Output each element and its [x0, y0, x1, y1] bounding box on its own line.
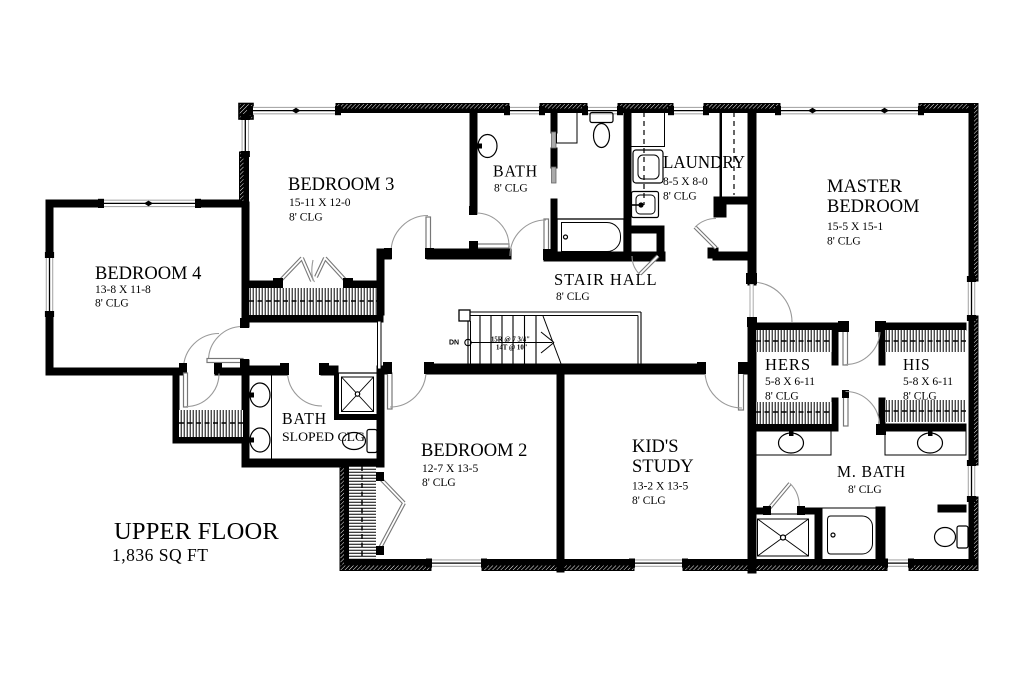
svg-text:8' CLG: 8' CLG: [95, 298, 129, 310]
svg-text:STUDY: STUDY: [632, 457, 694, 477]
svg-text:15-11 X 12-0: 15-11 X 12-0: [289, 197, 351, 209]
svg-text:5-8 X 6-11: 5-8 X 6-11: [765, 376, 815, 388]
svg-text:BATH: BATH: [493, 162, 538, 181]
svg-text:15R @ 7 3/4": 15R @ 7 3/4": [491, 337, 530, 344]
svg-text:8' CLG: 8' CLG: [903, 391, 937, 403]
svg-text:BEDROOM: BEDROOM: [827, 197, 920, 217]
svg-text:14T @ 10": 14T @ 10": [496, 345, 528, 352]
svg-text:STAIR HALL: STAIR HALL: [554, 270, 657, 289]
svg-text:HIS: HIS: [903, 355, 931, 374]
svg-text:KID'S: KID'S: [632, 437, 679, 457]
svg-text:12-7 X 13-5: 12-7 X 13-5: [422, 463, 478, 475]
svg-text:1,836 SQ FT: 1,836 SQ FT: [112, 545, 208, 565]
svg-text:LAUNDRY: LAUNDRY: [663, 152, 745, 172]
svg-text:13-8 X 11-8: 13-8 X 11-8: [95, 284, 151, 296]
svg-text:8' CLG: 8' CLG: [632, 495, 666, 507]
svg-text:8' CLG: 8' CLG: [848, 484, 882, 496]
svg-text:8' CLG: 8' CLG: [765, 391, 799, 403]
svg-text:HERS: HERS: [765, 355, 811, 374]
svg-text:13-2 X 13-5: 13-2 X 13-5: [632, 481, 688, 493]
svg-text:5-8 X 6-11: 5-8 X 6-11: [903, 376, 953, 388]
svg-text:DN: DN: [449, 340, 459, 347]
svg-text:8' CLG: 8' CLG: [827, 236, 861, 248]
svg-text:BEDROOM 3: BEDROOM 3: [288, 175, 394, 195]
svg-text:M. BATH: M. BATH: [837, 462, 906, 481]
svg-text:8' CLG: 8' CLG: [422, 477, 456, 489]
svg-text:8' CLG: 8' CLG: [494, 183, 528, 195]
svg-text:UPPER FLOOR: UPPER FLOOR: [114, 518, 279, 545]
svg-text:8' CLG: 8' CLG: [556, 291, 590, 303]
svg-text:8-5 X 8-0: 8-5 X 8-0: [663, 176, 708, 188]
svg-text:BEDROOM 4: BEDROOM 4: [95, 264, 201, 284]
svg-text:BATH: BATH: [282, 409, 327, 428]
svg-text:SLOPED CLG: SLOPED CLG: [282, 430, 365, 444]
svg-text:8' CLG: 8' CLG: [663, 191, 697, 203]
svg-text:MASTER: MASTER: [827, 177, 903, 197]
svg-text:15-5 X 15-1: 15-5 X 15-1: [827, 221, 883, 233]
svg-text:8' CLG: 8' CLG: [289, 212, 323, 224]
svg-text:BEDROOM 2: BEDROOM 2: [421, 441, 527, 461]
